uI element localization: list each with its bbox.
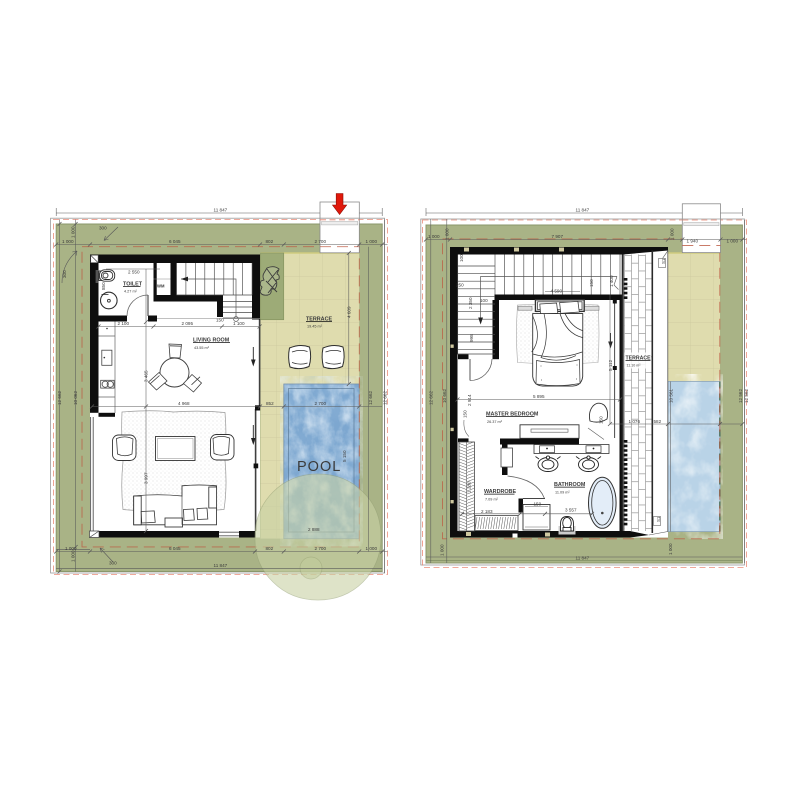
svg-text:150: 150 [462,410,467,418]
svg-text:1 000: 1 000 [670,228,675,240]
svg-text:850: 850 [101,282,106,290]
svg-text:26.37 m²: 26.37 m² [487,420,503,424]
svg-text:2 350: 2 350 [468,297,473,309]
svg-text:300: 300 [62,270,67,278]
svg-text:10 662: 10 662 [442,389,447,403]
svg-text:2 095: 2 095 [182,321,194,326]
svg-text:150: 150 [589,279,594,287]
svg-text:2 700: 2 700 [315,239,327,244]
svg-text:10 062: 10 062 [73,391,78,405]
svg-text:4.27 m²: 4.27 m² [124,290,138,294]
svg-text:3 465: 3 465 [144,370,149,382]
svg-text:5 895: 5 895 [533,394,545,399]
svg-text:300: 300 [109,561,117,566]
svg-text:998: 998 [469,334,474,342]
svg-text:2 700: 2 700 [315,546,327,551]
svg-text:1 000: 1 000 [62,239,74,244]
svg-text:12 562: 12 562 [738,389,743,403]
svg-text:1 940: 1 940 [687,239,699,244]
svg-text:852: 852 [266,401,274,406]
svg-text:5 112: 5 112 [608,359,613,371]
svg-text:12 662: 12 662 [428,391,433,405]
svg-text:5 150: 5 150 [342,450,347,462]
svg-text:2 100: 2 100 [118,321,130,326]
svg-text:2 183: 2 183 [481,509,493,514]
svg-text:11 847: 11 847 [576,208,590,213]
svg-text:150: 150 [599,416,604,424]
svg-text:3 997: 3 997 [144,472,149,484]
svg-text:2 550: 2 550 [128,270,140,275]
svg-text:2 888: 2 888 [308,527,320,532]
svg-text:100: 100 [459,254,464,262]
svg-text:11.09 m²: 11.09 m² [555,491,570,495]
svg-text:1 000: 1 000 [366,546,378,551]
svg-text:1 000: 1 000 [668,543,673,555]
svg-text:6 045: 6 045 [169,546,181,551]
svg-text:12 662: 12 662 [368,391,373,405]
svg-text:1 000: 1 000 [366,239,378,244]
svg-text:12 562: 12 562 [744,389,749,403]
svg-text:1 280: 1 280 [467,481,472,493]
svg-text:1 000: 1 000 [439,544,444,556]
svg-text:3 557: 3 557 [565,508,577,513]
svg-text:6 045: 6 045 [169,239,181,244]
svg-text:S1: S1 [656,516,661,522]
svg-text:12 662: 12 662 [382,391,387,405]
svg-text:7.09 m²: 7.09 m² [485,498,499,502]
svg-text:300: 300 [99,226,107,231]
svg-text:1 000: 1 000 [727,239,739,244]
svg-text:POOL: POOL [297,459,341,475]
svg-text:2 914: 2 914 [467,394,472,406]
svg-text:43.55 m²: 43.55 m² [194,346,210,350]
svg-text:1 000: 1 000 [444,228,449,240]
svg-text:802: 802 [266,239,274,244]
svg-text:100: 100 [480,298,488,303]
svg-text:250: 250 [456,283,464,288]
svg-text:19.45 m²: 19.45 m² [307,325,323,329]
svg-text:1 000: 1 000 [71,226,76,238]
svg-text:11 847: 11 847 [214,208,228,213]
svg-text:11 847: 11 847 [576,556,590,561]
svg-text:4 590: 4 590 [551,289,563,294]
svg-text:1 000: 1 000 [428,234,440,239]
svg-text:4 968: 4 968 [178,401,190,406]
svg-text:7 907: 7 907 [552,234,564,239]
svg-text:582: 582 [654,419,662,424]
svg-text:2 700: 2 700 [315,401,327,406]
svg-text:1 000: 1 000 [65,546,77,551]
svg-text:10 561: 10 561 [668,389,673,403]
svg-text:802: 802 [266,546,274,551]
svg-text:11 847: 11 847 [214,563,228,568]
svg-text:4 609: 4 609 [347,306,352,318]
svg-text:1 000: 1 000 [71,550,76,562]
svg-text:WM: WM [157,284,165,289]
svg-text:1 076: 1 076 [629,419,641,424]
svg-text:11.10 m²: 11.10 m² [627,364,642,368]
svg-text:S1: S1 [661,258,666,264]
svg-text:1 400: 1 400 [609,275,614,287]
svg-text:150: 150 [534,502,542,507]
svg-text:150: 150 [216,318,224,323]
svg-text:1 100: 1 100 [233,321,245,326]
svg-text:12 662: 12 662 [57,391,62,405]
